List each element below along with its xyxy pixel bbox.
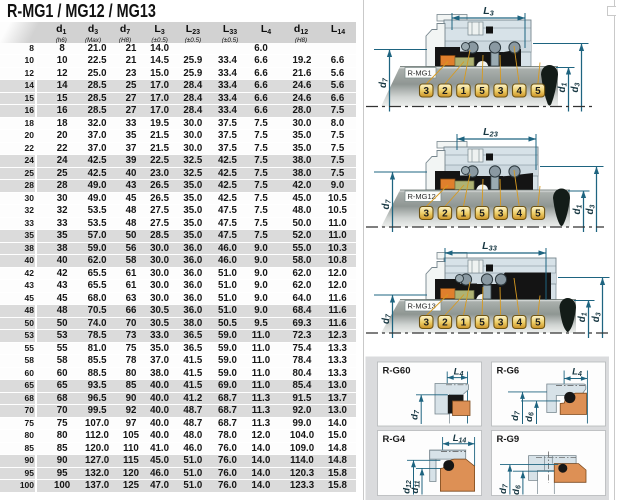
svg-text:3: 3 [423, 209, 429, 220]
svg-text:3: 3 [498, 318, 504, 329]
svg-text:R-G60: R-G60 [383, 366, 411, 377]
svg-text:R-MG13: R-MG13 [408, 302, 436, 311]
svg-text:d3: d3 [591, 312, 603, 322]
svg-text:d7: d7 [381, 313, 393, 324]
svg-text:5: 5 [479, 86, 485, 97]
svg-text:R-MG12: R-MG12 [408, 192, 436, 201]
svg-text:2: 2 [442, 318, 448, 329]
svg-text:5: 5 [479, 209, 485, 220]
svg-text:L33: L33 [482, 240, 498, 253]
svg-text:5: 5 [535, 209, 541, 220]
svg-text:5: 5 [535, 318, 541, 329]
svg-text:1: 1 [461, 209, 467, 220]
svg-text:1: 1 [461, 86, 467, 97]
svg-text:4: 4 [516, 209, 522, 220]
svg-text:L23: L23 [483, 126, 499, 139]
svg-text:4: 4 [516, 318, 522, 329]
svg-text:R-MG1: R-MG1 [408, 69, 432, 78]
svg-text:1: 1 [461, 318, 467, 329]
svg-text:3: 3 [423, 86, 429, 97]
svg-text:d1: d1 [557, 82, 569, 92]
svg-text:d3: d3 [570, 82, 582, 92]
svg-text:R-G9: R-G9 [497, 434, 520, 445]
svg-text:2: 2 [442, 86, 448, 97]
svg-text:4: 4 [516, 86, 522, 97]
svg-text:L3: L3 [483, 5, 494, 18]
svg-text:d7: d7 [381, 198, 393, 209]
svg-text:3: 3 [498, 209, 504, 220]
svg-text:R-G4: R-G4 [383, 434, 406, 445]
svg-text:5: 5 [535, 86, 541, 97]
svg-text:d7: d7 [378, 77, 390, 88]
svg-text:3: 3 [498, 86, 504, 97]
svg-text:2: 2 [442, 209, 448, 220]
svg-text:d1: d1 [572, 204, 584, 214]
svg-text:3: 3 [423, 318, 429, 329]
svg-text:d1: d1 [577, 312, 589, 322]
svg-text:d3: d3 [585, 204, 597, 214]
svg-text:R-G6: R-G6 [497, 366, 520, 377]
svg-text:5: 5 [479, 318, 485, 329]
